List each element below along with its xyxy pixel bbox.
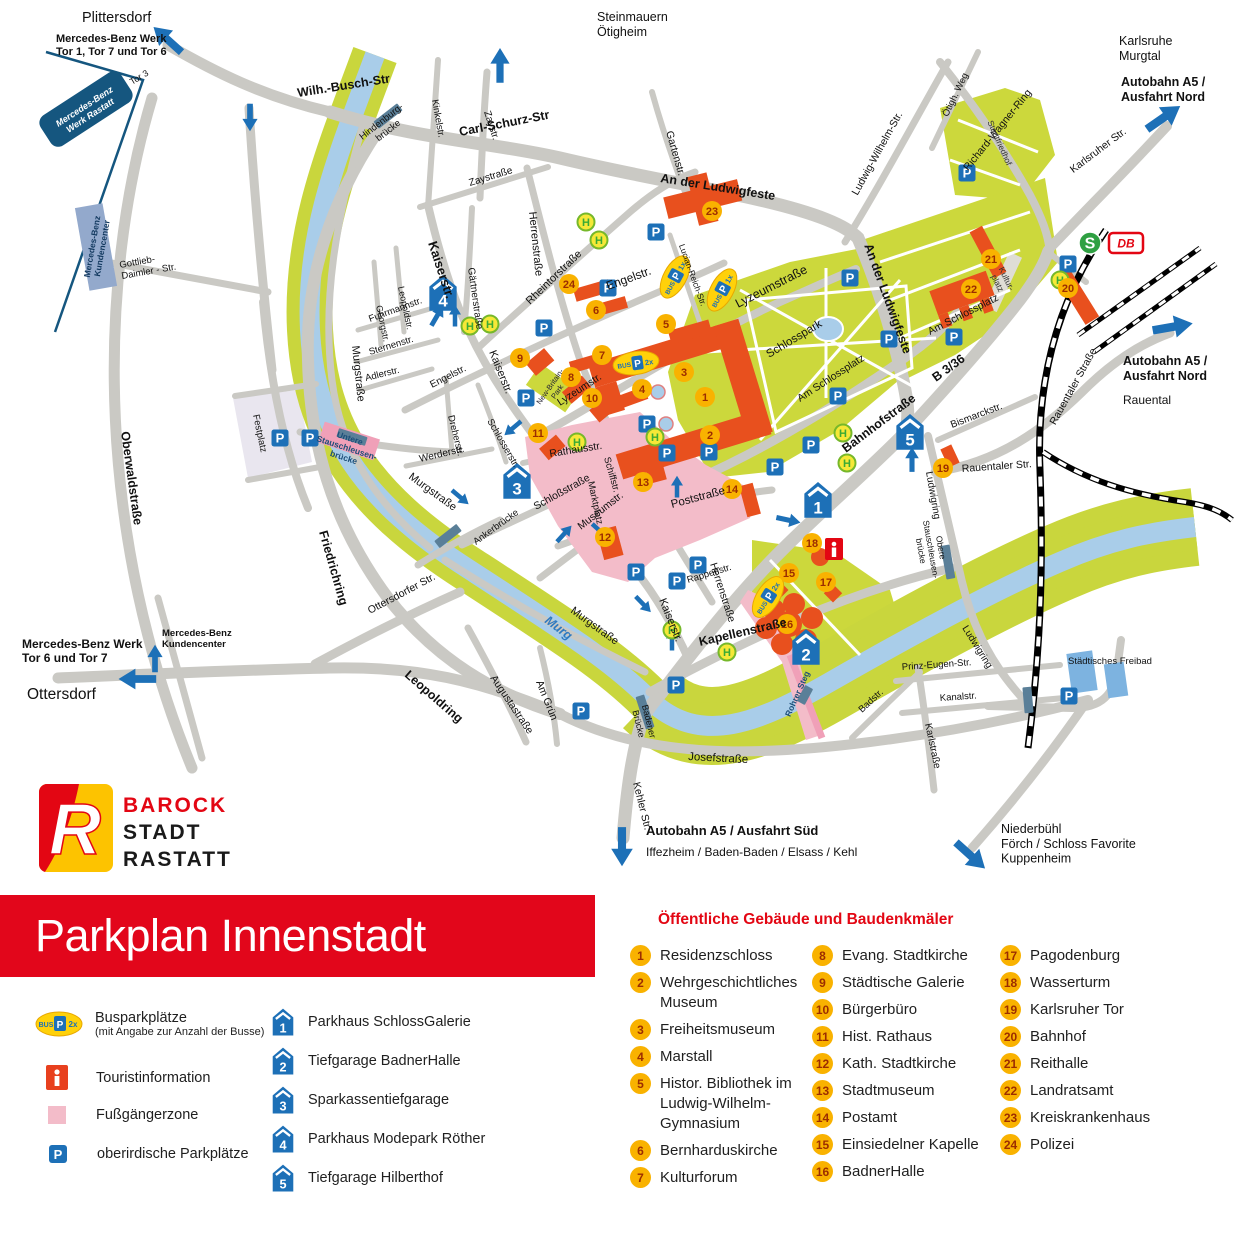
poi-label: Kreiskrankenhaus [1030,1107,1150,1128]
map-label: Gartenstr. [663,130,687,178]
poi-item: 12Kath. Stadtkirche [812,1053,998,1074]
parking-marker: P [1060,256,1077,273]
poi-marker-1: 1 [695,387,715,407]
poi-label: Bürgerbüro [842,999,917,1020]
poi-marker-19: 19 [933,458,953,478]
poi-marker-13: 13 [633,472,653,492]
parkhaus-marker-1: 1 [273,1009,294,1036]
map-label: Plittersdorf [82,10,152,26]
parkhaus-marker-1: 1 [804,482,831,518]
poi-marker-9: 9 [510,348,530,368]
title-banner: Parkplan Innenstadt [0,895,595,977]
poi-item: 4Marstall [630,1046,830,1067]
svg-text:P: P [522,391,531,406]
db-icon: DB [1109,233,1143,253]
pedestrian-zone-swatch [48,1106,66,1124]
parking-marker: P [648,224,665,241]
poi-item: 2Wehrgeschichtliches Museum [630,972,830,1013]
svg-text:19: 19 [937,463,949,475]
svg-text:11: 11 [532,428,544,440]
parkhaus-marker-2: 2 [273,1048,294,1075]
city-map: 12345PPPPPPPPPPPPPPPPPPPPPPPHHHHHHHHHHHB… [0,0,1240,897]
parking-marker: P [946,329,963,346]
svg-text:S: S [1085,236,1096,253]
svg-text:P: P [950,330,959,345]
poi-label: Freiheitsmuseum [660,1019,775,1040]
poi-number-badge: 15 [812,1134,833,1155]
svg-text:P: P [672,678,681,693]
poi-number-badge: 11 [812,1026,833,1047]
parking-marker: P [830,388,847,405]
poi-label: Bernharduskirche [660,1140,778,1161]
poi-number-badge: 24 [1000,1134,1021,1155]
parkhaus-icon: 5 [270,1163,296,1193]
poi-marker-3: 3 [674,362,694,382]
svg-text:4: 4 [639,384,646,396]
map-label: Kanalstr. [939,690,977,704]
poi-label: Polizei [1030,1134,1074,1155]
parkhaus-marker-3: 3 [503,463,530,499]
poi-item: 22Landratsamt [1000,1080,1220,1101]
poi-number-badge: 12 [812,1053,833,1074]
poi-number-badge: 18 [1000,972,1021,993]
legend-parking-label: oberirdische Parkplätze [97,1146,249,1162]
sbahn-icon: S [1079,232,1101,254]
poi-marker-12: 12 [595,527,615,547]
poi-label: Histor. Bibliothek im Ludwig-Wilhelm-Gym… [660,1073,830,1134]
parking-marker: P [803,437,820,454]
svg-text:18: 18 [806,538,818,550]
poi-marker-11: 11 [528,423,548,443]
poi-marker-18: 18 [802,533,822,553]
svg-text:10: 10 [586,393,598,405]
poi-marker-17: 17 [816,572,836,592]
svg-text:12: 12 [599,532,611,544]
svg-text:P: P [834,389,843,404]
svg-text:P: P [577,704,586,719]
parking-marker: P [669,573,686,590]
poi-column-3: 17Pagodenburg18Wasserturm19Karlsruher To… [1000,945,1220,1161]
poi-number-badge: 19 [1000,999,1021,1020]
poi-item: 23Kreiskrankenhaus [1000,1107,1220,1128]
poi-item: 7Kulturforum [630,1167,830,1188]
parking-marker: P [659,445,676,462]
map-label: Autobahn A5 / Ausfahrt Süd [646,823,818,838]
parkhaus-marker-4: 4 [273,1126,294,1153]
svg-text:15: 15 [783,568,795,580]
parking-marker: P [272,430,289,447]
poi-item: 10Bürgerbüro [812,999,998,1020]
svg-text:H: H [582,217,590,229]
garage-label: Parkhaus SchlossGalerie [308,1014,471,1030]
map-label: Mercedes-BenzKundencenter [162,628,232,650]
poi-number-badge: 16 [812,1161,833,1182]
poi-item: 9Städtische Galerie [812,972,998,993]
poi-item: 15Einsiedelner Kapelle [812,1134,998,1155]
parkhaus-icon: 3 [270,1085,296,1115]
svg-text:1: 1 [813,499,822,518]
svg-text:23: 23 [706,206,718,218]
poi-label: Residenzschloss [660,945,773,966]
map-label: Tor 3 [128,68,150,87]
svg-text:P: P [632,565,641,580]
poi-marker-20: 20 [1058,278,1078,298]
svg-text:P: P [540,321,549,336]
poi-number-badge: 22 [1000,1080,1021,1101]
parkhaus-icon: 1 [270,1007,296,1037]
poi-label: Wasserturm [1030,972,1110,993]
svg-text:21: 21 [985,254,997,266]
legend-touristinfo: Touristinformation [46,1065,210,1090]
parking-marker: P [1061,688,1078,705]
svg-text:3: 3 [279,1099,286,1113]
garage-label: Tiefgarage Hilberthof [308,1170,443,1186]
poi-marker-5: 5 [656,314,676,334]
svg-text:P: P [652,225,661,240]
svg-text:P: P [705,445,714,460]
svg-text:8: 8 [568,372,574,384]
svg-text:P: P [846,271,855,286]
poi-marker-22: 22 [961,279,981,299]
svg-text:7: 7 [599,350,605,362]
parking-marker: P [518,390,535,407]
svg-text:P: P [276,431,285,446]
poi-number-badge: 8 [812,945,833,966]
map-label: Autobahn A5 /Ausfahrt Nord [1121,75,1206,104]
svg-text:4: 4 [279,1138,286,1152]
legend-info-label: Touristinformation [96,1070,210,1086]
poi-item: 3Freiheitsmuseum [630,1019,830,1040]
svg-text:P: P [663,446,672,461]
svg-text:H: H [595,235,603,247]
poi-item: 13Stadtmuseum [812,1080,998,1101]
garage-label: Tiefgarage BadnerHalle [308,1053,461,1069]
poi-item: 24Polizei [1000,1134,1220,1155]
svg-text:H: H [843,458,851,470]
poi-label: Postamt [842,1107,897,1128]
map-label: Autobahn A5 /Ausfahrt Nord [1123,354,1208,383]
svg-text:13: 13 [637,477,649,489]
garage-legend-item: 5Tiefgarage Hilberthof [270,1163,485,1193]
legend-bus-note: (mit Angabe zur Anzahl der Busse) [95,1026,264,1038]
svg-text:DB: DB [1117,237,1135,251]
poi-item: 1Residenzschloss [630,945,830,966]
poi-label: Einsiedelner Kapelle [842,1134,979,1155]
bus-parking-icon: BUS P 2x [35,1011,83,1037]
svg-text:22: 22 [965,284,977,296]
poi-number-badge: 23 [1000,1107,1021,1128]
poi-number-badge: 4 [630,1046,651,1067]
map-label: Engelstr. [604,264,653,293]
bus-stop-marker: H [647,429,664,446]
svg-text:5: 5 [663,319,669,331]
tourist-info-icon [46,1065,68,1090]
logo-mark: R [33,782,115,874]
poi-label: Wehrgeschichtliches Museum [660,972,830,1013]
map-label: KarlsruheMurgtal [1119,34,1173,63]
svg-text:P: P [1064,257,1073,272]
garage-label: Sparkassentiefgarage [308,1092,449,1108]
poi-number-badge: 2 [630,972,651,993]
map-label: Ottersdorf [27,686,97,703]
svg-text:P: P [807,438,816,453]
poi-number-badge: 10 [812,999,833,1020]
direction-arrow-icon [490,48,509,83]
map-label: Karlsruher Str. [1068,126,1129,176]
poi-item: 5Histor. Bibliothek im Ludwig-Wilhelm-Gy… [630,1073,830,1134]
poi-number-badge: 21 [1000,1053,1021,1074]
poi-marker-7: 7 [592,345,612,365]
parking-icon-letter: P [54,1147,63,1162]
poi-marker-4: 4 [632,379,652,399]
svg-text:1: 1 [279,1021,286,1035]
svg-text:P: P [306,431,315,446]
parking-marker: P [628,564,645,581]
svg-text:9: 9 [517,353,523,365]
poi-number-badge: 20 [1000,1026,1021,1047]
direction-arrow-icon [905,447,919,472]
svg-text:2: 2 [801,646,810,665]
svg-text:24: 24 [563,279,576,291]
legend-bus-label: Busparkplätze [95,1010,264,1026]
svg-text:P: P [673,574,682,589]
svg-text:P: P [771,460,780,475]
bus-icon-count: 2x [69,1020,78,1029]
svg-text:3: 3 [681,367,687,379]
parking-marker: P [767,459,784,476]
parking-marker: P [701,444,718,461]
svg-text:P: P [1065,689,1074,704]
map-label: Iffezheim / Baden-Baden / Elsass / Kehl [646,845,857,859]
poi-item: 6Bernharduskirche [630,1140,830,1161]
poi-column-2: 8Evang. Stadtkirche9Städtische Galerie10… [812,945,998,1188]
poi-column-1: 1Residenzschloss2Wehrgeschichtliches Mus… [630,945,830,1194]
svg-text:17: 17 [820,577,832,589]
bus-icon-text: BUS [39,1022,54,1029]
poi-label: Hist. Rathaus [842,1026,932,1047]
poi-item: 21Reithalle [1000,1053,1220,1074]
svg-text:5: 5 [905,431,914,450]
bus-stop-marker: H [839,455,856,472]
bus-stop-marker: H [578,214,595,231]
map-label: NiederbühlFörch / Schloss FavoriteKuppen… [1001,822,1136,866]
svg-text:6: 6 [593,305,599,317]
legend-parkplaetze: P oberirdische Parkplätze [49,1145,249,1163]
svg-text:20: 20 [1062,283,1074,295]
poi-marker-6: 6 [586,300,606,320]
legend-busparkplaetze: BUS P 2x Busparkplätze (mit Angabe zur A… [35,1010,264,1038]
map-label: Städtisches Freibad [1068,656,1152,667]
courtyard-fountain [659,417,673,431]
bus-stop-marker: H [719,644,736,661]
map-label: Carl-Schurz-Str [458,108,551,139]
map-label: Murgstraße [349,345,367,402]
poi-label: Karlsruher Tor [1030,999,1124,1020]
map-label: SteinmauernÖtigheim [597,10,668,39]
svg-text:P: P [885,332,894,347]
map-label: Rauental [1123,393,1171,407]
poi-number-badge: 13 [812,1080,833,1101]
poi-number-badge: 17 [1000,945,1021,966]
poi-label: Reithalle [1030,1053,1088,1074]
legend-fussgaengerzone: Fußgängerzone [48,1106,198,1124]
garage-legend-item: 2Tiefgarage BadnerHalle [270,1046,485,1076]
map-label: Gottlieb-Daimler - Str. [119,250,177,281]
map-label: Mercedes-Benz WerkTor 1, Tor 7 und Tor 6 [56,33,167,58]
logo-line-1: BAROCK [123,792,232,819]
poi-item: 11Hist. Rathaus [812,1026,998,1047]
parkhaus-icon: 2 [270,1046,296,1076]
poi-item: 20Bahnhof [1000,1026,1220,1047]
svg-text:H: H [486,319,494,331]
poi-item: 14Postamt [812,1107,998,1128]
poi-number-badge: 6 [630,1140,651,1161]
svg-text:14: 14 [726,484,739,496]
poi-item: 16BadnerHalle [812,1161,998,1182]
poi-number-badge: 14 [812,1107,833,1128]
poi-label: Stadtmuseum [842,1080,935,1101]
poi-marker-15: 15 [779,563,799,583]
svg-text:2: 2 [279,1060,286,1074]
direction-arrow-icon [949,834,993,876]
page: { "title": "Parkplan Innenstadt", "logo"… [0,0,1240,1240]
poi-label: Landratsamt [1030,1080,1113,1101]
poi-item: 8Evang. Stadtkirche [812,945,998,966]
logo: R BAROCK STADT RASTATT [33,782,232,874]
railway [1028,230,1232,748]
logo-line-2: STADT [123,819,232,846]
poi-marker-21: 21 [981,249,1001,269]
map-label: Mercedes-Benz WerkTor 6 und Tor 7 [22,637,143,665]
parking-marker: P [668,677,685,694]
legend-pedestrian-label: Fußgängerzone [96,1107,198,1123]
poi-number-badge: 3 [630,1019,651,1040]
page-title: Parkplan Innenstadt [35,910,426,962]
parkhaus-icon: 4 [270,1124,296,1154]
svg-text:H: H [723,647,731,659]
logo-line-3: RASTATT [123,846,232,873]
garage-legend-item: 3Sparkassentiefgarage [270,1085,485,1115]
svg-text:1: 1 [702,392,708,404]
poi-number-badge: 1 [630,945,651,966]
poi-marker-2: 2 [700,425,720,445]
info-panel: R BAROCK STADT RASTATT Parkplan Innensta… [0,897,1240,1240]
poi-heading: Öffentliche Gebäude und Baudenkmäler [658,911,953,929]
parkhaus-marker-5: 5 [273,1165,294,1192]
bus-stop-marker: H [591,232,608,249]
parking-icon: P [49,1145,67,1163]
parking-marker: P [842,270,859,287]
tourist-info-icon [825,538,843,560]
garage-legend-item: 4Parkhaus Modepark Röther [270,1124,485,1154]
poi-label: Pagodenburg [1030,945,1120,966]
svg-text:3: 3 [512,480,521,499]
poi-label: Marstall [660,1046,713,1067]
poi-number-badge: 9 [812,972,833,993]
svg-text:2: 2 [707,430,713,442]
poi-number-badge: 5 [630,1073,651,1094]
poi-label: Kulturforum [660,1167,738,1188]
parking-marker: P [536,320,553,337]
garage-legend: 1Parkhaus SchlossGalerie2Tiefgarage Badn… [270,1007,485,1202]
poi-item: 18Wasserturm [1000,972,1220,993]
poi-label: Kath. Stadtkirche [842,1053,956,1074]
garage-legend-item: 1Parkhaus SchlossGalerie [270,1007,485,1037]
parkhaus-marker-3: 3 [273,1087,294,1114]
courtyard-fountain [651,385,665,399]
svg-text:5: 5 [279,1177,286,1191]
svg-text:H: H [651,432,659,444]
poi-label: Evang. Stadtkirche [842,945,968,966]
poi-label: Bahnhof [1030,1026,1086,1047]
parking-marker: P [573,703,590,720]
poi-label: BadnerHalle [842,1161,925,1182]
bus-icon-p: P [57,1020,64,1031]
poi-item: 19Karlsruher Tor [1000,999,1220,1020]
garage-label: Parkhaus Modepark Röther [308,1131,485,1147]
poi-item: 17Pagodenburg [1000,945,1220,966]
poi-marker-23: 23 [702,201,722,221]
logo-initial: R [49,790,101,870]
logo-text: BAROCK STADT RASTATT [123,782,232,874]
poi-label: Städtische Galerie [842,972,965,993]
poi-number-badge: 7 [630,1167,651,1188]
